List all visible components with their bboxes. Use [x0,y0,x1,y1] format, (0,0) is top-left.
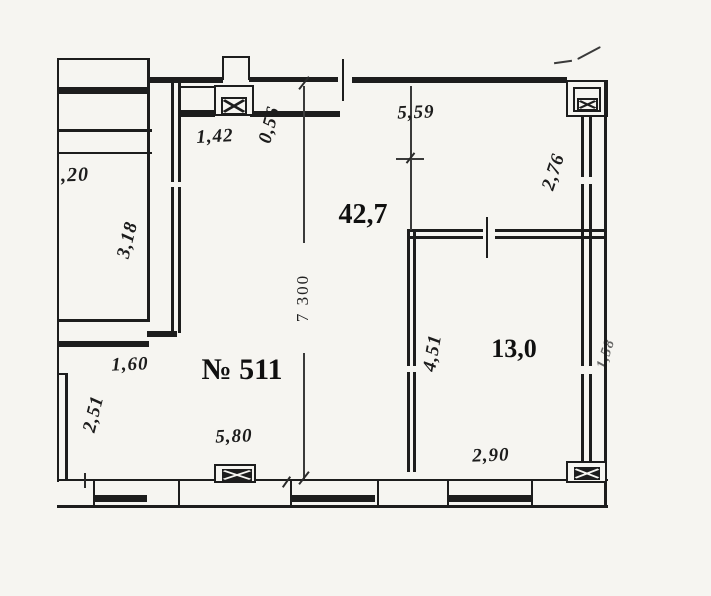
column-bottom-right-marker [574,467,600,480]
column-x-icon [223,99,245,113]
wall-top-segment-c [352,77,567,83]
dim-label-2-76: 2,76 [536,143,572,201]
dim-label-5-59: 5,59 [390,102,443,124]
dim-label-7300: 7 300 [293,243,313,353]
wall-right-inner-2a [589,115,592,177]
window-mullion [447,481,449,507]
scan-mark [554,60,572,64]
window-glass-bar [292,495,375,502]
wall-neighbor-bottom-thick [57,341,149,347]
dim-label-2-51: 2,51 [78,385,110,442]
dim-label-3-18: 3,18 [112,211,144,268]
wall-right-inner-1c [581,374,584,463]
wall-top-segment-a [150,77,223,83]
column-x-icon [579,100,596,109]
dim-label-20: ,20 [52,164,99,186]
pier-bottom-marker [222,469,252,481]
window-mullion [377,481,379,507]
window-glass-bar [447,495,531,502]
wall-right-inner-1b [581,184,584,366]
window-mullion [93,481,95,507]
wall-recess-top-line [181,86,215,88]
wall-living-left-2b [178,187,181,333]
wall-right-inner-2c [589,374,592,463]
window-glass-bar [95,495,147,502]
dim-tick [84,473,86,488]
wall-recess-bottom-left [181,110,215,117]
wall-bottom-face [57,479,608,481]
wall-living-left-2a [178,80,181,182]
dim-label-4-51: 4,51 [418,325,447,382]
window-mullion [178,481,180,507]
wall-break-stroke-top [342,59,344,101]
vent-shaft-stub [222,56,250,80]
wall-neighbor-corridor-bottom [57,152,152,154]
wall-left-inner-lower [65,374,68,480]
column-x-icon [574,467,600,480]
column-top-left-marker [221,97,247,115]
wall-bottom-outer [57,505,608,508]
floorplan-scan-page: 1,42 0,56 5,59 2,76 ,20 3,18 7 300 1,60 … [0,0,711,596]
dim-label-1-42: 1,42 [186,125,245,148]
wall-right-inner-1a [581,115,584,177]
wall-living-left-1b [171,187,174,333]
wall-neighbor-room-bottom-thin [57,319,150,322]
wall-neighbor-balcony-sill [57,87,150,94]
room-area-living: 42,7 [325,199,401,231]
dim-label-5-80: 5,80 [206,426,263,448]
dim-label-0-56: 0,56 [252,92,287,157]
door-jamb-left [59,373,68,375]
room-area-bedroom: 13,0 [477,334,551,364]
dim-label-1-60: 1,60 [103,354,158,376]
wall-right-inner-2b [589,184,592,366]
wall-bedroom-top-2a [407,236,483,239]
wall-living-left-1a [171,80,174,182]
column-x-icon [222,469,252,481]
scan-mark [577,46,601,60]
wall-break-stroke-bedroom [486,217,488,258]
dim-line-7300-upper [303,86,305,247]
wall-bedroom-top-1a [407,229,483,232]
wall-right-outer [604,81,607,507]
wall-neighbor-corridor-top [57,129,152,132]
window-mullion [531,481,533,507]
dim-label-2-90: 2,90 [464,445,519,467]
wall-bedroom-left-2a [413,232,416,366]
wall-bedroom-left-1b [407,372,410,472]
wall-bedroom-left-1a [407,232,410,366]
dim-label-right-edge-partial: 1,58 [589,328,623,380]
wall-bedroom-top-1b [495,229,606,232]
wall-neighbor-balcony-top [57,58,150,60]
column-top-right-marker [577,98,598,111]
wall-neighbor-vertical [147,58,150,322]
unit-number: № 511 [189,353,295,387]
wall-top-segment-b [249,77,338,82]
dim-line-7300-lower [303,350,305,479]
wall-bedroom-left-2b [413,372,416,472]
wall-bedroom-top-2b [495,236,606,239]
window-mullion [290,481,292,507]
wall-left-outer [57,58,59,482]
